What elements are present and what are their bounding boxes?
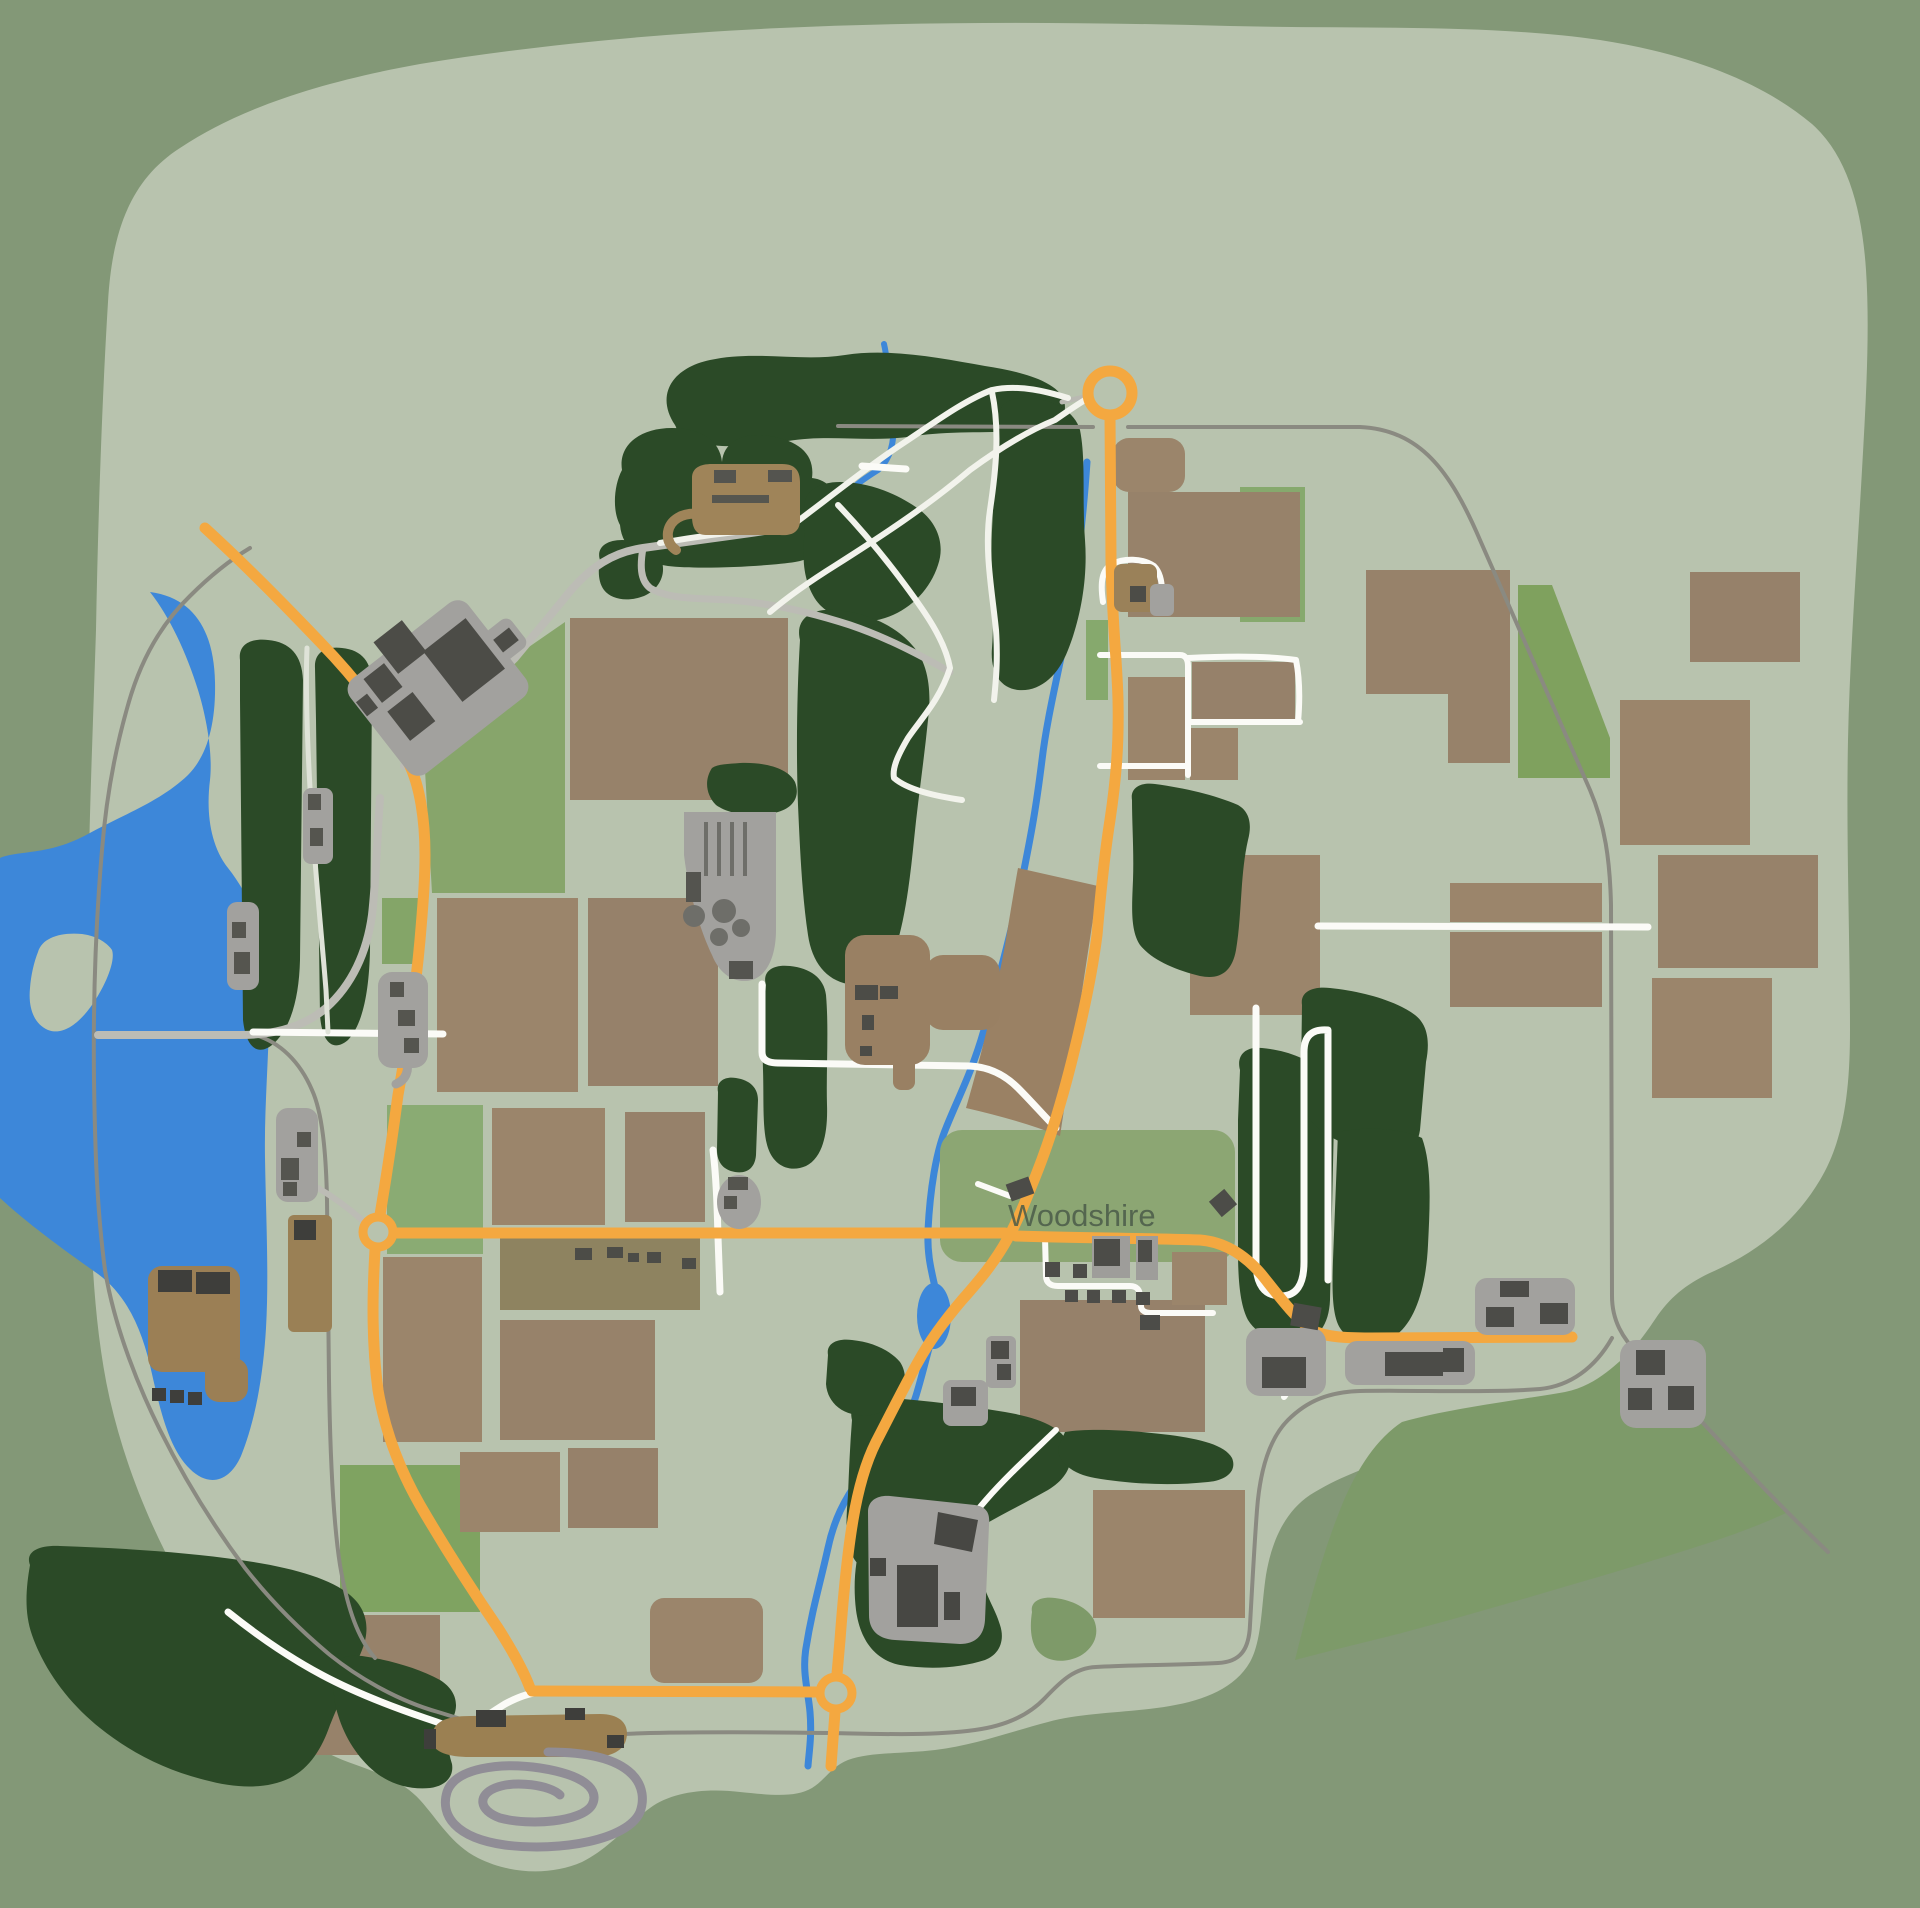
roof	[860, 1046, 872, 1056]
market-roof	[682, 1258, 696, 1269]
roof	[1486, 1307, 1514, 1327]
roof	[234, 952, 250, 974]
field	[1450, 883, 1602, 922]
roof	[424, 1729, 436, 1749]
main-road-south-exit	[831, 1712, 835, 1766]
roof	[1262, 1357, 1306, 1388]
roof	[308, 794, 321, 810]
forest-patch	[717, 1078, 758, 1173]
roof	[1540, 1303, 1568, 1324]
field	[1190, 728, 1238, 780]
roof	[281, 1158, 299, 1180]
field	[1652, 978, 1772, 1098]
ne-mini-farm-pad	[1150, 584, 1174, 616]
roof	[944, 1592, 960, 1620]
roof	[170, 1390, 184, 1403]
roof	[1668, 1386, 1694, 1410]
roof	[768, 470, 792, 482]
roof	[870, 1558, 886, 1576]
main-road-bottom	[532, 1691, 818, 1692]
roof	[1628, 1388, 1652, 1410]
game-map[interactable]	[0, 0, 1920, 1908]
field	[383, 1257, 482, 1442]
roof	[1290, 1303, 1322, 1331]
roof	[1500, 1281, 1529, 1297]
grass-field	[1086, 620, 1108, 700]
roof	[714, 470, 736, 483]
field	[650, 1598, 763, 1683]
forest-column	[763, 966, 828, 1169]
field	[500, 1320, 655, 1440]
roof	[855, 985, 878, 1000]
roof	[294, 1220, 316, 1240]
roof	[196, 1272, 230, 1294]
market-roof	[575, 1248, 592, 1260]
farmhouse-tail	[893, 1055, 915, 1090]
village-house	[1140, 1315, 1160, 1330]
field	[1658, 855, 1818, 968]
field	[1093, 1490, 1245, 1618]
roof	[951, 1387, 976, 1406]
village-house	[1073, 1264, 1087, 1278]
roof	[1443, 1348, 1464, 1372]
roof	[310, 828, 323, 846]
roof	[897, 1565, 938, 1627]
farmhouse-blob	[925, 955, 1000, 1030]
roof	[398, 1010, 415, 1026]
roof	[607, 1735, 624, 1748]
roof	[991, 1341, 1009, 1359]
shore-pad	[227, 902, 259, 990]
field	[460, 1452, 560, 1532]
field-market-row	[500, 1238, 700, 1310]
field	[437, 898, 578, 1092]
village-house	[1087, 1290, 1100, 1303]
roof	[1094, 1239, 1120, 1266]
roof	[1130, 586, 1146, 602]
roof	[188, 1392, 202, 1405]
market-roof	[607, 1247, 623, 1258]
village-house	[1065, 1290, 1078, 1302]
map-exit-ring	[1088, 371, 1132, 415]
white-road	[1318, 926, 1648, 927]
field	[1192, 662, 1295, 719]
bridge	[862, 466, 906, 469]
field	[1020, 1300, 1205, 1432]
roof	[724, 1196, 737, 1209]
field	[588, 898, 718, 1086]
roundabout-west	[363, 1217, 393, 1247]
field	[1450, 932, 1602, 1007]
roof	[476, 1710, 506, 1727]
roof	[686, 872, 701, 902]
field	[1620, 700, 1750, 845]
roof	[158, 1270, 192, 1292]
roof	[390, 982, 404, 997]
roof	[152, 1388, 166, 1401]
silo	[683, 905, 705, 927]
roof	[565, 1708, 585, 1720]
field	[1690, 572, 1800, 662]
campground-tail	[205, 1358, 248, 1402]
roof	[297, 1132, 311, 1147]
silo	[732, 919, 750, 937]
roof	[1138, 1240, 1152, 1262]
field	[625, 1112, 705, 1222]
roof	[404, 1038, 419, 1053]
forest-east-strip	[1132, 784, 1250, 977]
roof	[862, 1015, 874, 1030]
village-house	[1136, 1292, 1150, 1305]
field	[568, 1448, 658, 1528]
track-building	[432, 1714, 627, 1758]
roof	[729, 961, 753, 979]
roof	[283, 1182, 297, 1196]
roof	[1385, 1352, 1443, 1376]
market-roof	[647, 1252, 661, 1263]
market-roof	[628, 1253, 639, 1262]
roof	[728, 1177, 748, 1190]
roof	[232, 922, 246, 938]
roof	[880, 986, 898, 999]
village-house	[1045, 1262, 1060, 1277]
field	[492, 1108, 605, 1225]
silo	[710, 928, 728, 946]
roundabout-south	[820, 1677, 852, 1709]
roof	[1636, 1350, 1665, 1375]
roof	[712, 495, 769, 503]
field	[1113, 438, 1185, 492]
village-house	[1112, 1290, 1126, 1303]
map-viewport: Woodshire	[0, 0, 1920, 1908]
roof	[997, 1364, 1011, 1380]
field	[1172, 1252, 1227, 1305]
silo	[712, 899, 736, 923]
